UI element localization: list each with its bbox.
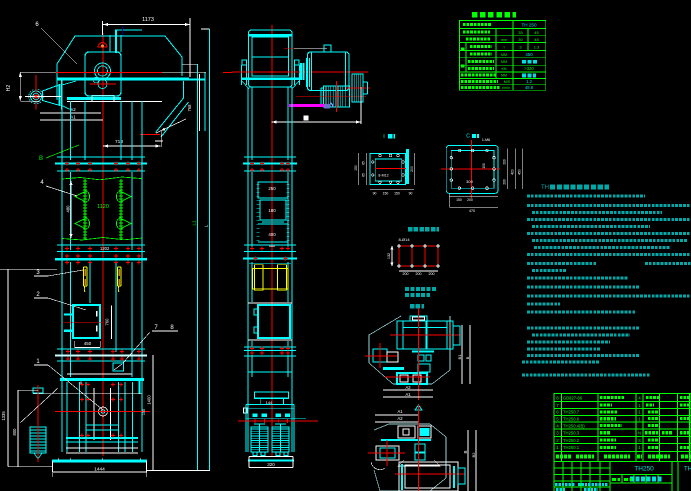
svg-text:B2: B2 <box>471 452 476 458</box>
svg-text:A2: A2 <box>405 385 411 390</box>
svg-text:TH: TH <box>541 185 549 191</box>
svg-text:65: 65 <box>362 173 366 177</box>
svg-text:S: S <box>638 438 641 443</box>
svg-text:1335: 1335 <box>1 411 6 421</box>
svg-text:1.2: 1.2 <box>526 79 532 84</box>
svg-text:A2: A2 <box>397 416 403 421</box>
svg-text:TH250.1: TH250.1 <box>563 445 580 450</box>
svg-text:250: 250 <box>268 186 276 191</box>
svg-text:MM: MM <box>501 60 507 64</box>
svg-text:768: 768 <box>187 104 192 112</box>
svg-text:200: 200 <box>502 159 506 165</box>
svg-text:II: II <box>80 380 82 385</box>
svg-text:TH2: TH2 <box>684 467 691 473</box>
svg-text:>320: >320 <box>524 66 534 71</box>
svg-text:300: 300 <box>466 179 473 184</box>
svg-text:450: 450 <box>517 169 521 175</box>
svg-text:180: 180 <box>268 208 276 213</box>
svg-text:800: 800 <box>12 428 17 436</box>
svg-text:8-M12: 8-M12 <box>378 174 388 178</box>
svg-text:30: 30 <box>518 37 523 42</box>
svg-text:TH250.6: TH250.6 <box>563 416 580 421</box>
svg-text:1-M6: 1-M6 <box>482 138 490 142</box>
svg-text:450: 450 <box>84 341 92 346</box>
svg-text:TH250.3: TH250.3 <box>563 431 580 436</box>
svg-text:65: 65 <box>362 161 366 165</box>
svg-text:B: B <box>39 156 43 162</box>
svg-text:A1: A1 <box>397 409 403 414</box>
svg-text:TH250: TH250 <box>634 466 654 473</box>
svg-text:420: 420 <box>510 169 514 175</box>
svg-text:A1: A1 <box>405 392 411 397</box>
svg-text:A1: A1 <box>70 115 76 120</box>
svg-text:N: N <box>638 431 641 436</box>
svg-text:200: 200 <box>410 166 414 172</box>
svg-text:200: 200 <box>416 272 422 276</box>
svg-text:A2: A2 <box>70 107 76 112</box>
svg-text:1202: 1202 <box>100 246 110 251</box>
svg-text:KN: KN <box>502 67 507 71</box>
svg-text:1444: 1444 <box>94 467 105 473</box>
svg-text:150: 150 <box>354 165 358 171</box>
svg-text:200: 200 <box>502 179 506 185</box>
svg-text:450: 450 <box>525 52 533 57</box>
svg-text:150: 150 <box>383 192 389 196</box>
svg-text:90: 90 <box>409 192 413 196</box>
svg-text:TH250.4(B): TH250.4(B) <box>563 423 585 428</box>
svg-text:1120: 1120 <box>97 204 109 210</box>
svg-text:TH250.2: TH250.2 <box>563 438 580 443</box>
svg-text:L1: L1 <box>192 220 197 226</box>
svg-text:35: 35 <box>518 30 523 35</box>
svg-text:200: 200 <box>403 272 409 276</box>
svg-text:480: 480 <box>66 205 71 213</box>
svg-text:mm: mm <box>501 38 507 42</box>
svg-text:200: 200 <box>467 198 473 202</box>
svg-text:150: 150 <box>394 192 400 196</box>
svg-text:GB827-86: GB827-86 <box>563 395 583 400</box>
svg-text:H2: H2 <box>6 85 12 92</box>
svg-text:320: 320 <box>267 462 275 467</box>
svg-text:90: 90 <box>373 192 377 196</box>
svg-text:150: 150 <box>456 198 462 202</box>
svg-text:760: 760 <box>105 318 110 326</box>
svg-text:470: 470 <box>469 209 475 213</box>
svg-text:B1: B1 <box>457 354 462 360</box>
svg-text:150: 150 <box>482 163 486 169</box>
svg-text:48: 48 <box>534 37 539 42</box>
svg-text:200: 200 <box>429 272 435 276</box>
svg-text:TH250.7: TH250.7 <box>563 410 580 415</box>
svg-text:C: C <box>466 134 470 140</box>
svg-text:45: 45 <box>534 30 539 35</box>
svg-text:MM: MM <box>501 53 507 57</box>
svg-text:TH 250: TH 250 <box>521 23 537 28</box>
svg-text:r/min: r/min <box>502 86 510 90</box>
svg-text:713: 713 <box>115 139 123 145</box>
svg-text:150: 150 <box>142 409 146 415</box>
svg-text:B: B <box>465 356 470 359</box>
svg-text:B: B <box>463 450 468 453</box>
svg-text:132: 132 <box>387 253 391 259</box>
svg-text:1173: 1173 <box>142 17 154 23</box>
svg-text:1.3: 1.3 <box>534 45 540 50</box>
svg-text:1400: 1400 <box>147 395 152 405</box>
svg-text:M/S: M/S <box>504 80 511 84</box>
svg-text:8-Ø14: 8-Ø14 <box>398 237 410 242</box>
svg-text:400: 400 <box>268 232 276 237</box>
svg-text:48.8: 48.8 <box>525 85 534 90</box>
svg-text:MM: MM <box>501 74 507 78</box>
